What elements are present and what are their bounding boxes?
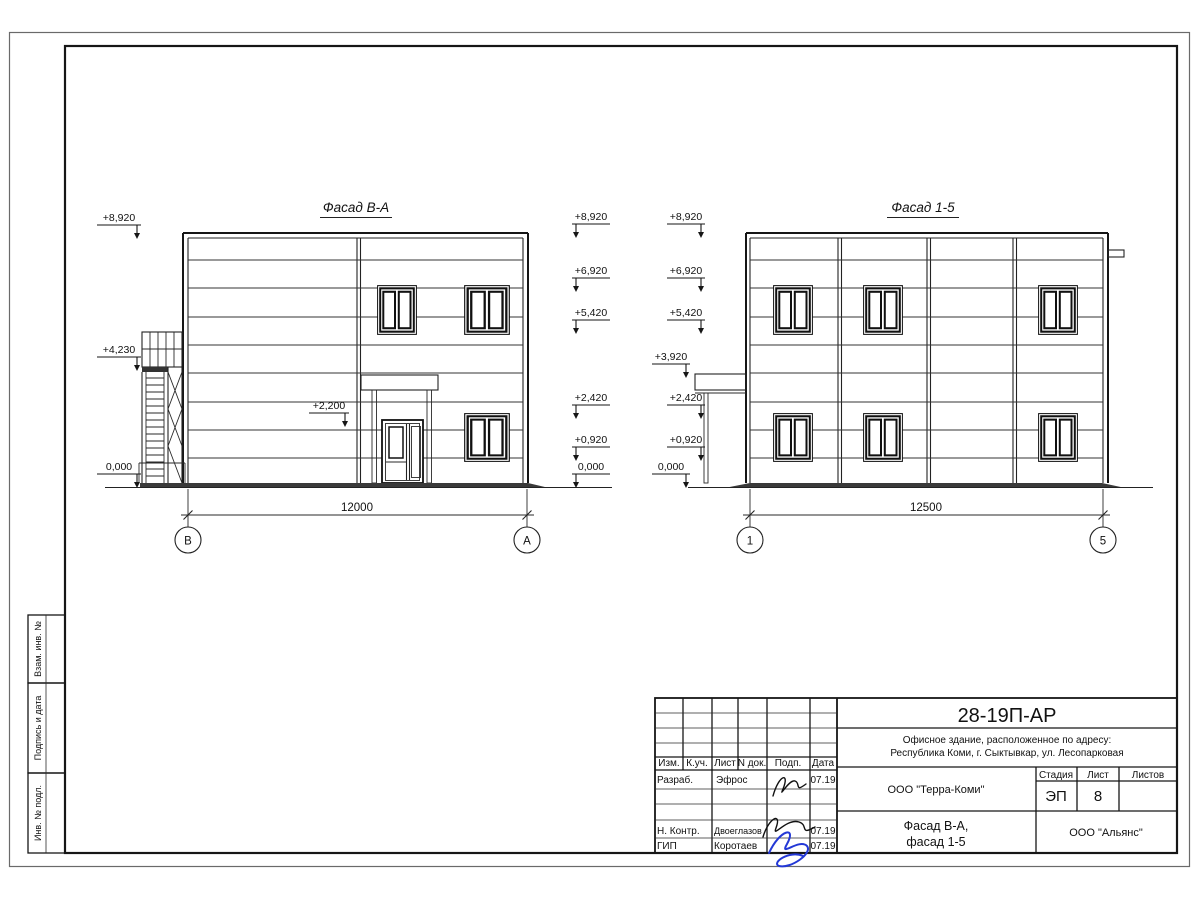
dimension-label-15: 12500 <box>910 502 942 514</box>
col-podp: Подп. <box>775 758 802 769</box>
elevation-mark-label: +5,420 <box>575 307 608 319</box>
facade-15-dimension: 12500 1 5 <box>737 489 1116 553</box>
title-block-left-table: Изм. К.уч. Лист N док. Подп. Дата Разраб… <box>655 698 837 866</box>
project-address-1: Офисное здание, расположенное по адресу: <box>903 734 1112 746</box>
elevation-mark-label: +8,920 <box>575 211 608 223</box>
col-data: Дата <box>812 758 835 769</box>
signature-gip <box>769 832 808 866</box>
col-kuch: К.уч. <box>686 758 708 769</box>
sheet-label: Лист <box>1087 770 1109 781</box>
facade-15: Фасад 1-5 <box>652 200 1153 553</box>
row-role: Н. Контр. <box>657 826 700 837</box>
axis-bubble-1: 1 <box>747 536 753 548</box>
dimension-label-ba: 12000 <box>341 502 373 514</box>
facade-15-windows <box>774 286 1078 462</box>
elevation-mark-label: +2,420 <box>575 392 608 404</box>
elevation-mark-label: +0,920 <box>670 434 703 446</box>
ladder-rungs <box>146 378 164 476</box>
drawing-title-2: фасад 1-5 <box>906 835 965 849</box>
facade-ba-title: Фасад В-А <box>323 200 389 215</box>
stage-value: ЭП <box>1045 788 1067 805</box>
frame-sidebar: Взам. инв. № Подпись и дата Инв. № подл. <box>28 615 65 853</box>
elevation-mark-label: +5,420 <box>670 307 703 319</box>
elevation-mark-label: +3,920 <box>655 351 688 363</box>
stage-label: Стадия <box>1039 770 1073 781</box>
axis-bubble-a: А <box>523 536 531 548</box>
signature-razrab <box>773 778 806 796</box>
fire-escape-stair <box>139 332 185 483</box>
col-izm: Изм. <box>658 758 679 769</box>
doc-number: 28-19П-АР <box>958 705 1057 727</box>
sidebar-label-podpis: Подпись и дата <box>33 696 43 761</box>
row-date: 07.19 <box>810 775 835 786</box>
title-block-right: 28-19П-АР Офисное здание, расположенное … <box>837 705 1177 853</box>
row-name: Двоеглазов <box>714 826 762 836</box>
project-address-2: Республика Коми, г. Сыктывкар, ул. Лесоп… <box>890 747 1123 759</box>
col-list: Лист <box>714 758 736 769</box>
row-role: ГИП <box>657 841 677 852</box>
contractor-org: ООО "Альянс" <box>1069 827 1143 839</box>
facade-ba-dimension: 12000 В А <box>175 489 540 553</box>
stair-braces <box>168 372 182 483</box>
facade-15-title: Фасад 1-5 <box>891 200 955 215</box>
facade-15-ground <box>688 483 1153 488</box>
elevation-mark-label: +2,200 <box>313 400 346 412</box>
side-canopy <box>695 374 746 483</box>
elevation-mark-label: +6,920 <box>670 265 703 277</box>
sidebar-label-zam: Взам. инв. № <box>33 621 43 677</box>
row-role: Разраб. <box>657 774 693 786</box>
drawing-sheet: Взам. инв. № Подпись и дата Инв. № подл.… <box>0 0 1200 900</box>
client-org: ООО "Терра-Коми" <box>887 784 984 796</box>
elevation-mark-label: 0,000 <box>578 461 604 473</box>
elevation-mark-label: +6,920 <box>575 265 608 277</box>
roof-drain-outlet <box>1108 250 1124 257</box>
elevation-mark-label: +2,420 <box>670 392 703 404</box>
drawing-canvas: Взам. инв. № Подпись и дата Инв. № подл.… <box>0 0 1200 900</box>
elevation-mark-label: +8,920 <box>670 211 703 223</box>
drawing-title-1: Фасад В-А, <box>904 819 969 833</box>
facade-ba: Фасад В-А <box>97 200 612 553</box>
title-block: Изм. К.уч. Лист N док. Подп. Дата Разраб… <box>655 698 1177 866</box>
facade-ba-elevation-marks-right: +8,920 +6,920 +5,420 +2,420 +0,920 0,000 <box>572 211 610 488</box>
sheet-value: 8 <box>1094 788 1102 805</box>
col-ndok: N док. <box>738 758 767 769</box>
elevation-mark-label: +8,920 <box>103 212 136 224</box>
sidebar-label-inv: Инв. № подл. <box>33 785 43 841</box>
facade-15-elevation-marks: +8,920 +6,920 +5,420 +3,920 +2,420 +0,92… <box>652 211 705 488</box>
elevation-mark-label: +0,920 <box>575 434 608 446</box>
facade-ba-elevation-marks-left: +8,920 +4,230 0,000 +2,200 <box>97 212 349 488</box>
facade-ba-ground <box>105 483 612 488</box>
row-name: Эфрос <box>716 774 748 786</box>
row-name: Коротаев <box>714 841 757 852</box>
axis-bubble-v: В <box>184 536 192 548</box>
entrance-door <box>382 420 423 483</box>
axis-bubble-5: 5 <box>1100 536 1106 548</box>
row-date: 07.19 <box>810 841 835 852</box>
sheets-label: Листов <box>1132 770 1165 781</box>
elevation-mark-label: 0,000 <box>658 461 684 473</box>
elevation-mark-label: +4,230 <box>103 344 136 356</box>
elevation-mark-label: 0,000 <box>106 461 132 473</box>
